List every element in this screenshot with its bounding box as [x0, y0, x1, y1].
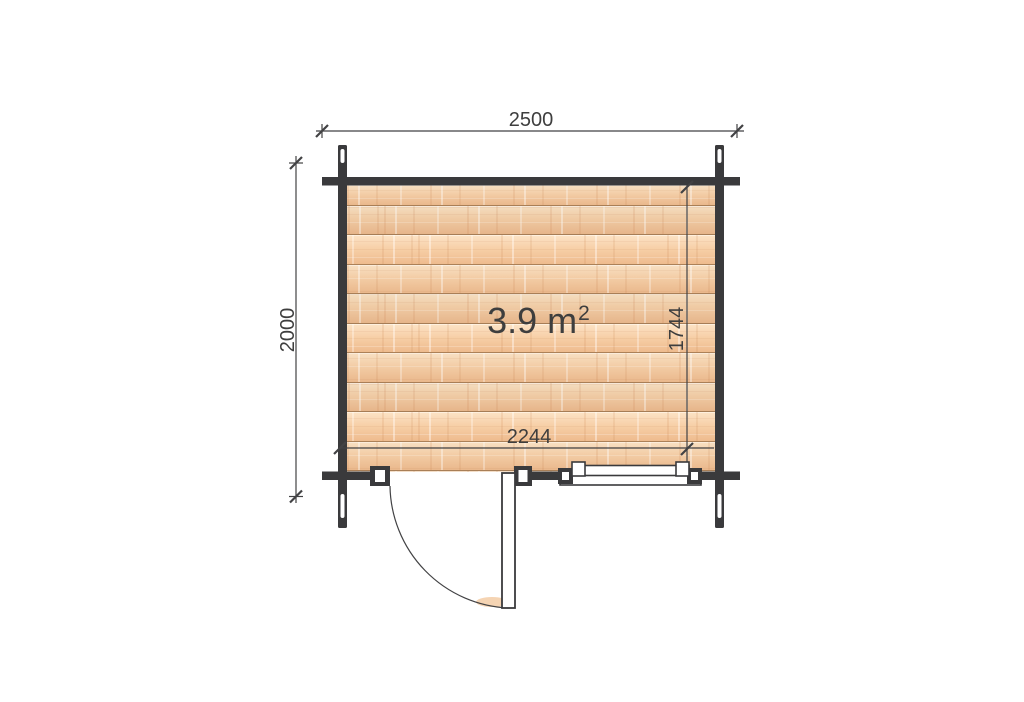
- log-end-slot: [341, 149, 345, 163]
- door-swing-arc: [390, 486, 509, 608]
- dim-tick: [290, 491, 302, 503]
- log-end-slot: [718, 149, 722, 163]
- wall-bottom-left-segment: [322, 472, 374, 481]
- door: [370, 466, 532, 608]
- wall-right: [715, 145, 724, 528]
- window-jamb-core: [691, 472, 698, 480]
- dim-interior-width-label: 2244: [419, 425, 639, 449]
- dim-tick: [316, 125, 328, 137]
- wall-left: [338, 145, 347, 528]
- area-value: 3.9 m: [487, 300, 577, 341]
- floor-plank: [347, 471, 715, 472]
- wall-bottom-mid-segment: [530, 472, 564, 481]
- floor-plank: [347, 206, 715, 236]
- dim-tick: [334, 442, 346, 454]
- area-label: 3.9 m2: [398, 299, 678, 349]
- wall-bottom-right-segment: [700, 472, 740, 481]
- door-leaf: [502, 473, 515, 608]
- door-floor-smudge: [476, 597, 508, 607]
- window-jamb-core: [562, 472, 569, 480]
- dim-tick: [290, 157, 302, 169]
- dim-overall-height-label: 2000: [276, 220, 300, 440]
- floor-plank: [347, 383, 715, 413]
- floor-plank: [347, 265, 715, 295]
- dim-overall-width-label: 2500: [421, 108, 641, 132]
- floor-plank: [347, 185, 715, 206]
- log-end-slot: [718, 494, 722, 518]
- log-end-slot: [341, 494, 345, 518]
- floor-plank: [347, 353, 715, 383]
- area-superscript: 2: [578, 302, 590, 325]
- window-outer-frame: [560, 474, 701, 485]
- floor-plank: [347, 235, 715, 265]
- floorplan-canvas: 2500 2000 1744 2244 3.9 m2: [0, 0, 1024, 702]
- dim-tick: [731, 125, 743, 137]
